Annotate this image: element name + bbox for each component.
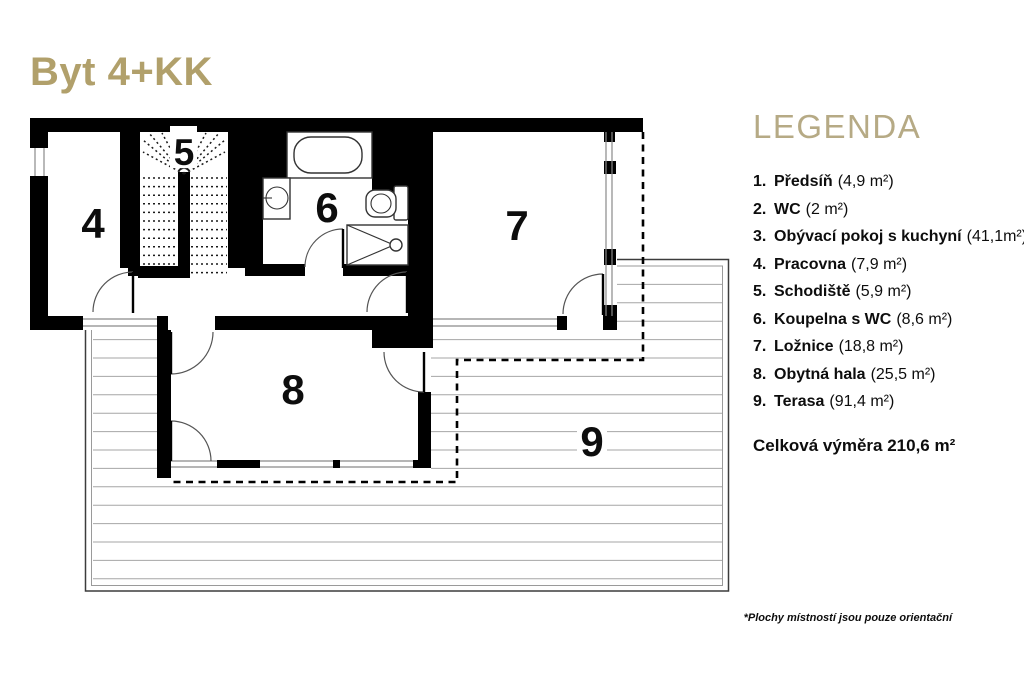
legend-item-name: Pracovna xyxy=(774,251,846,279)
legend-item-area: (5,9 m²) xyxy=(855,278,911,306)
door-corridor xyxy=(367,272,407,313)
room-label-7: 7 xyxy=(505,202,528,249)
legend-item-number: 3. xyxy=(753,223,774,251)
legend-item-area: (4,9 m²) xyxy=(838,168,894,196)
legend-item-area: (2 m²) xyxy=(806,196,849,224)
bathtub-icon xyxy=(287,132,372,178)
legend-item: 3. Obývací pokoj s kuchyní (41,1m²) xyxy=(753,223,1021,251)
shower-icon xyxy=(347,225,408,265)
legend-list: 1. Předsíň (4,9 m²) 2. WC (2 m²) 3. Obýv… xyxy=(753,168,1021,416)
legend-item-area: (25,5 m²) xyxy=(871,361,936,389)
legend-item: 5. Schodiště (5,9 m²) xyxy=(753,278,1021,306)
room-label-9: 9 xyxy=(580,418,603,465)
legend-item-number: 2. xyxy=(753,196,774,224)
legend-item: 7. Ložnice (18,8 m²) xyxy=(753,333,1021,361)
legend-heading: LEGENDA xyxy=(753,108,1021,146)
legend-item-area: (7,9 m²) xyxy=(851,251,907,279)
toilet-icon xyxy=(366,186,408,220)
legend-item: 9. Terasa (91,4 m²) xyxy=(753,388,1021,416)
footnote: *Plochy místností jsou pouze orientační xyxy=(640,612,952,624)
sink-icon xyxy=(263,178,290,219)
room-label-5: 5 xyxy=(174,132,195,173)
door-room8-top xyxy=(171,332,213,374)
legend-item-name: Obytná hala xyxy=(774,361,866,389)
legend-item-number: 7. xyxy=(753,333,774,361)
legend-item-name: Schodiště xyxy=(774,278,850,306)
legend-item-area: (91,4 m²) xyxy=(829,388,894,416)
legend-panel: LEGENDA 1. Předsíň (4,9 m²) 2. WC (2 m²)… xyxy=(753,108,1021,456)
legend-item-area: (41,1m²) xyxy=(967,223,1024,251)
legend-item: 2. WC (2 m²) xyxy=(753,196,1021,224)
room-label-6: 6 xyxy=(315,184,338,231)
legend-item: 8. Obytná hala (25,5 m²) xyxy=(753,361,1021,389)
door-room7 xyxy=(563,274,603,315)
legend-item-name: Předsíň xyxy=(774,168,833,196)
door-room8-right xyxy=(384,352,424,392)
legend-total: Celková výměra 210,6 m² xyxy=(753,436,1021,456)
legend-item-number: 1. xyxy=(753,168,774,196)
legend-item-area: (8,6 m²) xyxy=(896,306,952,334)
legend-item-name: Koupelna s WC xyxy=(774,306,891,334)
legend-item: 4. Pracovna (7,9 m²) xyxy=(753,251,1021,279)
legend-item: 6. Koupelna s WC (8,6 m²) xyxy=(753,306,1021,334)
legend-item-number: 9. xyxy=(753,388,774,416)
legend-item-number: 5. xyxy=(753,278,774,306)
legend-item-name: Terasa xyxy=(774,388,824,416)
legend-item-number: 8. xyxy=(753,361,774,389)
room-label-4: 4 xyxy=(81,200,105,247)
legend-item-number: 6. xyxy=(753,306,774,334)
door-bathroom xyxy=(305,229,343,268)
legend-item-number: 4. xyxy=(753,251,774,279)
legend-item-area: (18,8 m²) xyxy=(839,333,904,361)
legend-item-name: Ložnice xyxy=(774,333,834,361)
door-room4 xyxy=(93,272,133,313)
legend-item-name: Obývací pokoj s kuchyní xyxy=(774,223,962,251)
legend-item-name: WC xyxy=(774,196,801,224)
room-label-8: 8 xyxy=(281,366,304,413)
door-room8-bottom xyxy=(171,421,211,461)
legend-item: 1. Předsíň (4,9 m²) xyxy=(753,168,1021,196)
floor-plan-page: Byt 4+KK xyxy=(0,0,1024,683)
